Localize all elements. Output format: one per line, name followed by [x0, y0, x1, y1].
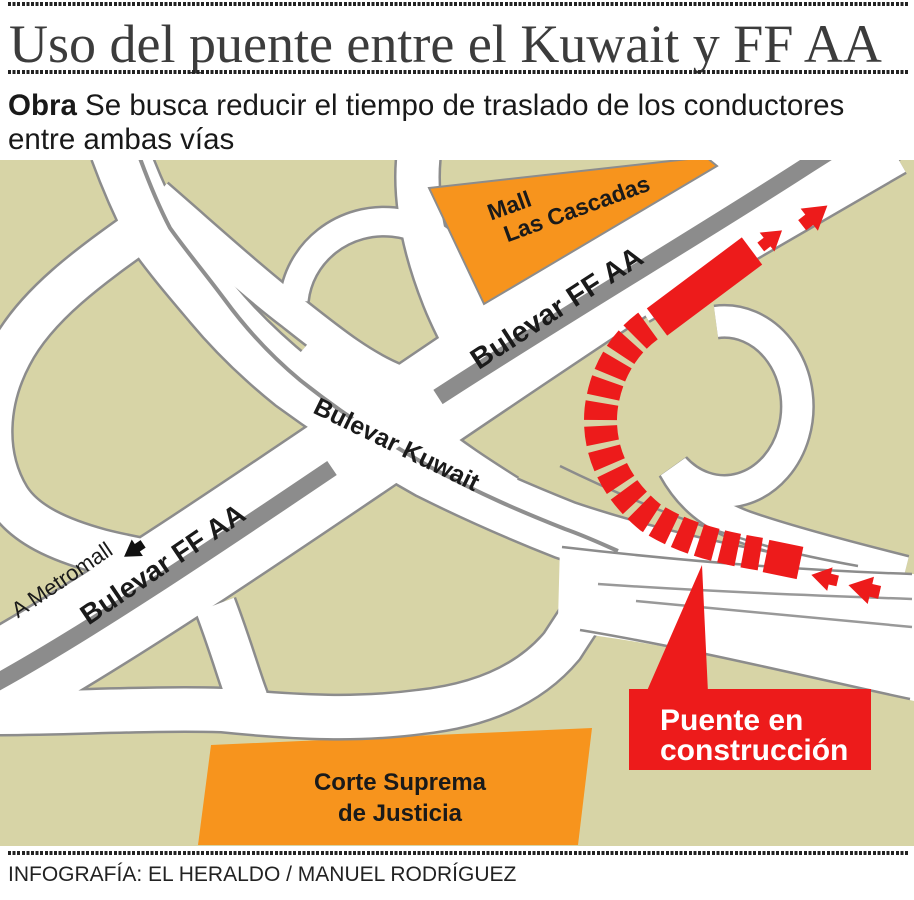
svg-text:Corte Suprema: Corte Suprema [314, 769, 487, 796]
svg-text:Puente en: Puente en [660, 704, 803, 737]
svg-text:de Justicia: de Justicia [338, 800, 463, 827]
svg-text:construcción: construcción [660, 734, 848, 767]
